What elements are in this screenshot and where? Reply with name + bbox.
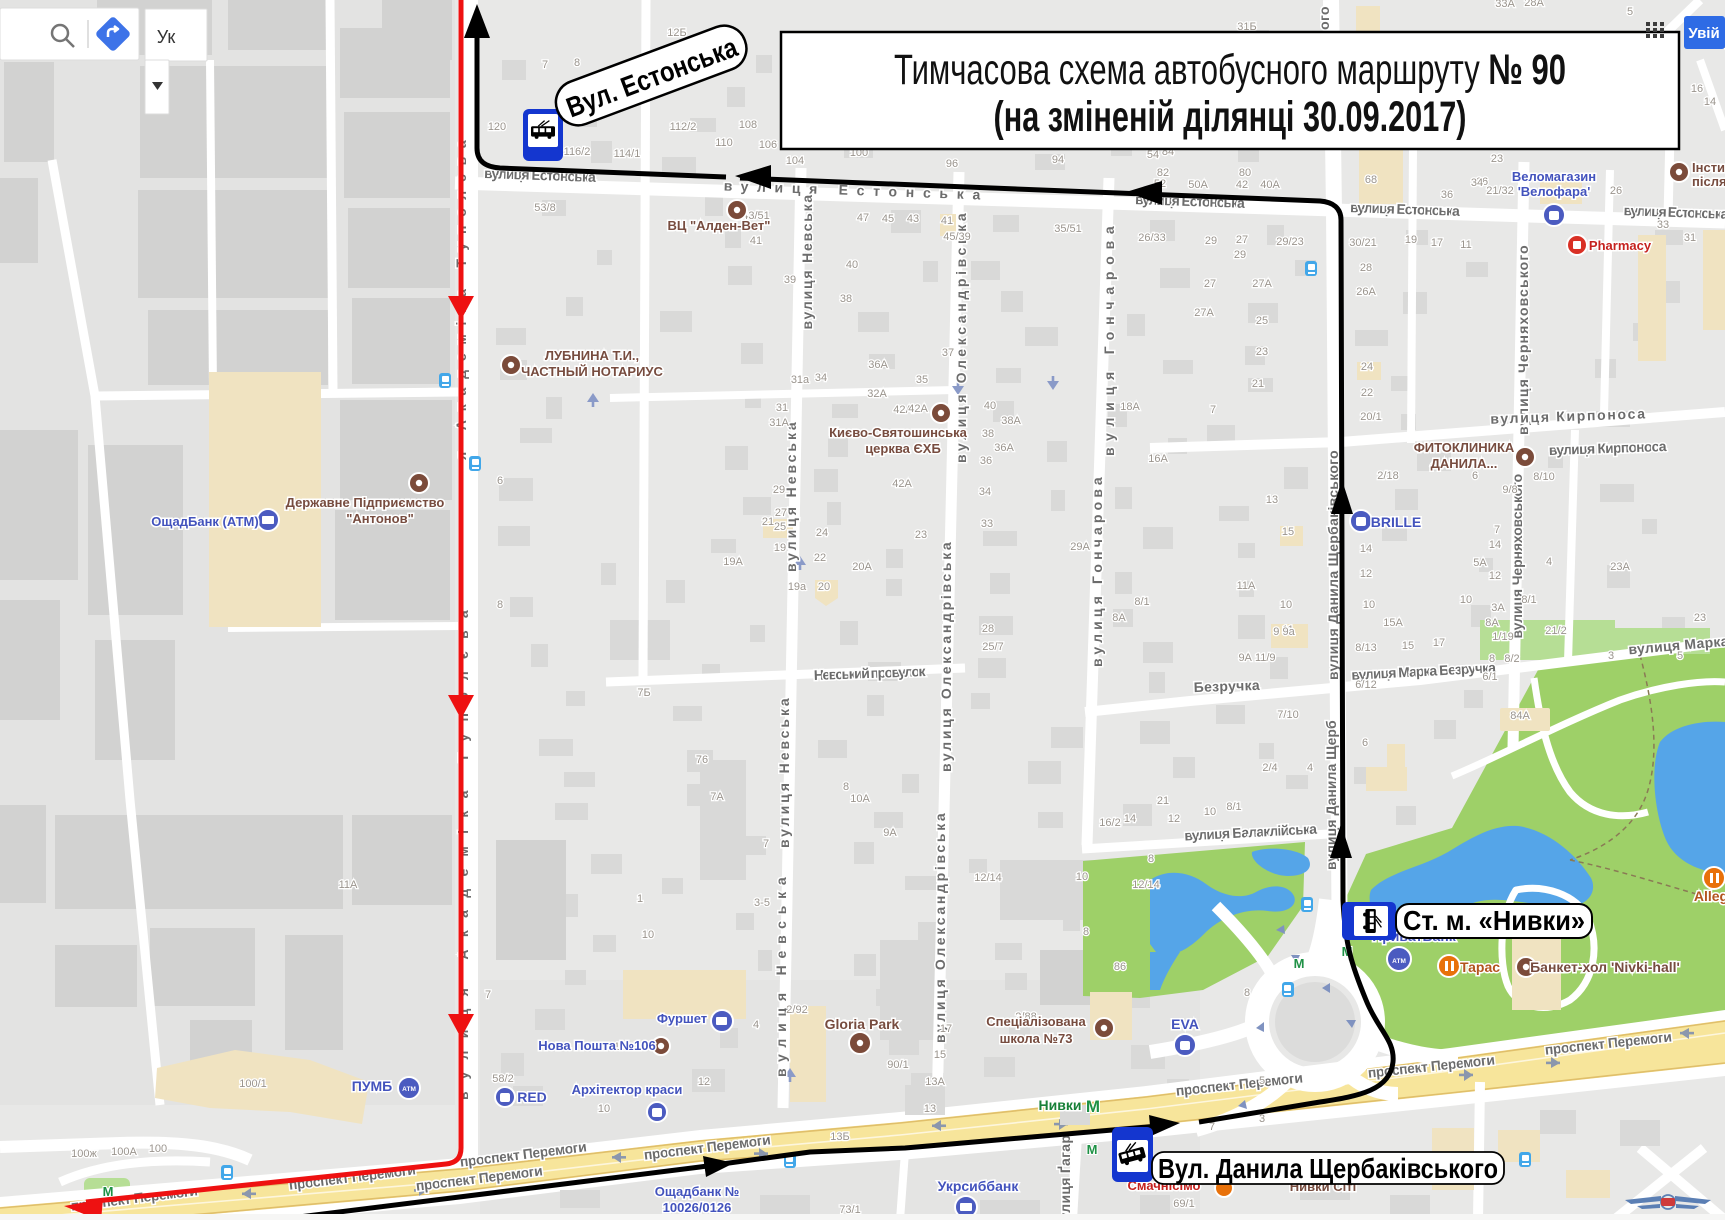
svg-text:М: М (1087, 1142, 1098, 1157)
svg-text:94: 94 (1052, 154, 1064, 166)
svg-text:38: 38 (840, 293, 852, 305)
svg-text:10: 10 (1363, 599, 1375, 611)
svg-text:27А: 27А (1252, 278, 1272, 290)
svg-text:Нивки: Нивки (1039, 1097, 1082, 1113)
svg-text:19: 19 (1405, 234, 1417, 246)
svg-text:3: 3 (1259, 1113, 1265, 1125)
svg-text:ого: ого (1316, 6, 1332, 30)
svg-text:15А: 15А (1383, 617, 1403, 629)
svg-text:8А: 8А (1485, 617, 1499, 629)
svg-text:22: 22 (814, 552, 826, 564)
svg-text:35: 35 (916, 374, 928, 386)
svg-text:36А: 36А (868, 359, 888, 371)
svg-text:8: 8 (497, 599, 503, 611)
svg-text:12Б: 12Б (667, 27, 686, 39)
svg-text:12: 12 (1168, 813, 1180, 825)
svg-text:6: 6 (1472, 470, 1478, 482)
svg-text:19А: 19А (723, 556, 743, 568)
svg-text:вулиця Черняховського: вулиця Черняховського (1509, 474, 1525, 639)
svg-text:1/19: 1/19 (1492, 631, 1513, 643)
svg-text:24: 24 (1361, 361, 1373, 373)
svg-text:26/33: 26/33 (1138, 232, 1166, 244)
svg-text:50A: 50A (1188, 179, 1208, 191)
svg-text:2/92: 2/92 (786, 1004, 807, 1016)
svg-text:100А: 100А (111, 1146, 137, 1158)
svg-text:42: 42 (1236, 179, 1248, 191)
svg-text:34: 34 (979, 486, 991, 498)
svg-text:вулиця Олександрівська: вулиця Олександрівська (938, 542, 954, 772)
svg-text:114/1: 114/1 (614, 148, 641, 160)
svg-text:11: 11 (1460, 239, 1471, 251)
svg-text:25: 25 (774, 521, 786, 533)
svg-text:8/13: 8/13 (1355, 642, 1376, 654)
svg-text:26: 26 (1610, 185, 1622, 197)
svg-text:М: М (1086, 1097, 1100, 1116)
svg-text:13: 13 (1266, 494, 1278, 506)
svg-text:5: 5 (1677, 650, 1683, 662)
svg-text:Укрсиббанк: Укрсиббанк (938, 1178, 1020, 1194)
svg-text:42А: 42А (892, 478, 912, 490)
svg-text:3А: 3А (1491, 602, 1505, 614)
svg-text:15: 15 (1282, 526, 1294, 538)
svg-text:58/2: 58/2 (492, 1073, 513, 1085)
svg-text:33: 33 (981, 518, 993, 530)
svg-text:5А: 5А (1473, 557, 1487, 569)
svg-text:37: 37 (942, 347, 954, 359)
svg-text:14: 14 (1360, 543, 1372, 555)
svg-text:35/51: 35/51 (1054, 223, 1082, 235)
svg-text:33: 33 (1657, 219, 1669, 231)
svg-text:36: 36 (980, 455, 992, 467)
svg-text:2/4: 2/4 (1262, 762, 1277, 774)
svg-text:3-5: 3-5 (754, 897, 770, 909)
svg-text:ВЦ "Алден-Вет": ВЦ "Алден-Вет" (668, 218, 771, 233)
svg-text:Вул. Данила Щербаківського: Вул. Данила Щербаківського (1158, 1153, 1498, 1184)
svg-text:10: 10 (598, 1103, 610, 1115)
svg-text:Тимчасова схема автобусного ма: Тимчасова схема автобусного маршруту № 9… (894, 46, 1566, 94)
svg-text:6: 6 (1362, 737, 1368, 749)
svg-text:14: 14 (1489, 539, 1501, 551)
svg-text:41: 41 (750, 235, 762, 247)
svg-text:69/1: 69/1 (1173, 1198, 1194, 1210)
svg-text:31: 31 (1684, 232, 1696, 244)
svg-text:ДАНИЛА...: ДАНИЛА... (1431, 456, 1498, 471)
svg-text:12: 12 (698, 1076, 710, 1088)
svg-text:26А: 26А (1356, 286, 1376, 298)
svg-text:47: 47 (857, 212, 869, 224)
svg-text:24: 24 (816, 527, 828, 539)
svg-text:45/39: 45/39 (943, 231, 971, 243)
svg-text:29: 29 (1205, 235, 1217, 247)
svg-text:8: 8 (843, 781, 849, 793)
svg-text:28: 28 (982, 623, 994, 635)
svg-text:18А: 18А (1120, 401, 1140, 413)
svg-text:4: 4 (1307, 762, 1313, 774)
svg-text:RED: RED (517, 1089, 547, 1105)
svg-text:9А 11/9: 9А 11/9 (1238, 652, 1275, 664)
svg-text:104: 104 (786, 155, 804, 167)
svg-text:12/14: 12/14 (974, 872, 1002, 884)
svg-text:Ощадбанк №: Ощадбанк № (655, 1184, 739, 1199)
svg-text:23: 23 (915, 529, 927, 541)
svg-text:21/32: 21/32 (1486, 185, 1514, 197)
svg-text:Ст. м. «Нивки»: Ст. м. «Нивки» (1403, 905, 1585, 936)
svg-text:120: 120 (488, 121, 506, 133)
svg-text:40: 40 (984, 400, 996, 412)
svg-text:116/2: 116/2 (564, 146, 591, 158)
svg-text:12: 12 (1360, 568, 1372, 580)
svg-text:16А: 16А (1148, 453, 1168, 465)
svg-text:післяд: післяд (1692, 174, 1725, 189)
svg-text:(на зміненій ділянці 30.09.201: (на зміненій ділянці 30.09.2017) (994, 93, 1467, 141)
svg-text:10: 10 (1460, 594, 1472, 606)
svg-text:29: 29 (773, 484, 785, 496)
svg-text:12: 12 (1489, 570, 1501, 582)
svg-text:10А: 10А (850, 793, 870, 805)
svg-text:АТМ: АТМ (1392, 958, 1406, 965)
svg-text:23: 23 (1256, 346, 1268, 358)
svg-text:22: 22 (1361, 387, 1373, 399)
svg-text:15: 15 (934, 1049, 946, 1061)
svg-text:41: 41 (941, 215, 953, 227)
svg-text:17: 17 (1431, 237, 1443, 249)
svg-text:106: 106 (759, 139, 777, 151)
svg-text:"Антонов": "Антонов" (346, 511, 414, 526)
svg-text:21: 21 (762, 516, 774, 528)
svg-text:Нова Пошта №106: Нова Пошта №106 (538, 1038, 656, 1053)
svg-text:10: 10 (1280, 599, 1292, 611)
svg-text:8/1: 8/1 (1521, 594, 1536, 606)
svg-text:Увій: Увій (1688, 25, 1719, 42)
svg-text:7: 7 (1494, 524, 1500, 536)
svg-text:45: 45 (882, 213, 894, 225)
svg-text:6/12: 6/12 (1355, 679, 1376, 691)
svg-text:1: 1 (637, 893, 643, 905)
svg-text:8/10: 8/10 (1533, 471, 1554, 483)
svg-text:школа №73: школа №73 (1000, 1031, 1073, 1046)
svg-text:13: 13 (924, 1103, 936, 1115)
svg-text:86: 86 (1114, 961, 1126, 973)
svg-text:Gloria Park: Gloria Park (825, 1016, 900, 1032)
svg-text:Alleg: Alleg (1694, 888, 1725, 904)
svg-text:40A: 40A (1260, 179, 1280, 191)
svg-text:Банкет-хол 'Nivki-hall': Банкет-хол 'Nivki-hall' (1530, 959, 1680, 975)
svg-text:8А: 8А (1112, 612, 1126, 624)
svg-text:вулиця Олександрівська: вулиця Олександрівська (932, 813, 948, 1043)
svg-text:7: 7 (763, 838, 769, 850)
svg-text:7: 7 (485, 989, 491, 1001)
svg-text:76: 76 (696, 754, 708, 766)
svg-text:29/23: 29/23 (1276, 236, 1304, 248)
svg-text:7: 7 (1210, 404, 1216, 416)
svg-text:54: 54 (1147, 149, 1159, 161)
svg-text:100/1: 100/1 (239, 1078, 267, 1090)
svg-text:4: 4 (753, 1019, 759, 1031)
svg-text:19а: 19а (788, 581, 807, 593)
svg-text:32А: 32А (867, 388, 887, 400)
svg-text:53/8: 53/8 (534, 202, 555, 214)
svg-text:20/1: 20/1 (1360, 411, 1381, 423)
svg-text:8: 8 (1083, 926, 1089, 938)
svg-text:20А: 20А (852, 561, 872, 573)
svg-text:Спеціалізована: Спеціалізована (986, 1014, 1086, 1029)
svg-text:17: 17 (940, 1023, 952, 1035)
svg-text:42А: 42А (908, 403, 928, 415)
svg-text:31А: 31А (769, 417, 789, 429)
svg-text:34: 34 (815, 372, 827, 384)
svg-text:84А: 84А (1510, 710, 1530, 722)
svg-text:16/2: 16/2 (1099, 817, 1120, 829)
svg-text:28: 28 (1360, 262, 1372, 274)
svg-text:10026/0126: 10026/0126 (663, 1200, 732, 1215)
svg-text:Ук: Ук (157, 27, 176, 47)
svg-text:100ж: 100ж (71, 1148, 97, 1160)
svg-text:38А: 38А (1001, 415, 1021, 427)
svg-text:Інстит: Інстит (1692, 160, 1725, 175)
svg-text:112/2: 112/2 (670, 121, 697, 133)
svg-text:АТМ: АТМ (402, 1086, 416, 1093)
svg-text:80: 80 (1239, 167, 1251, 179)
svg-text:2/18: 2/18 (1377, 470, 1398, 482)
svg-text:7Б: 7Б (637, 687, 650, 699)
svg-text:39: 39 (784, 274, 796, 286)
svg-text:3: 3 (1608, 650, 1614, 662)
svg-text:29А: 29А (1070, 541, 1090, 553)
svg-text:Веломагазин: Веломагазин (1512, 169, 1596, 184)
svg-text:вулиця Данила Щербаківського: вулиця Данила Щербаківського (1325, 450, 1341, 680)
svg-text:6/1: 6/1 (1482, 671, 1497, 683)
svg-text:5: 5 (1627, 6, 1633, 18)
svg-text:ПУМБ: ПУМБ (352, 1078, 393, 1094)
svg-text:8/1: 8/1 (1134, 596, 1149, 608)
svg-text:33А: 33А (1495, 0, 1515, 10)
svg-text:Фуршет: Фуршет (657, 1011, 707, 1026)
svg-text:21: 21 (1157, 795, 1169, 807)
svg-text:12/14: 12/14 (1132, 879, 1160, 891)
svg-text:25: 25 (1256, 315, 1268, 327)
svg-text:10: 10 (1076, 871, 1088, 883)
svg-text:5: 5 (1259, 1075, 1265, 1087)
svg-text:8: 8 (574, 57, 580, 69)
svg-text:34: 34 (1471, 177, 1483, 189)
svg-text:13Б: 13Б (830, 1131, 849, 1143)
svg-text:40: 40 (846, 259, 858, 271)
svg-text:7: 7 (1209, 1121, 1215, 1133)
svg-text:М: М (103, 1184, 114, 1199)
svg-text:38: 38 (982, 428, 994, 440)
svg-text:BRILLE: BRILLE (1371, 514, 1422, 530)
svg-text:ФИТОКЛИНИКА: ФИТОКЛИНИКА (1414, 440, 1515, 455)
svg-text:27: 27 (1236, 234, 1248, 246)
svg-text:Державне Підприємство: Державне Підприємство (286, 495, 445, 510)
svg-text:Безручка: Безручка (1193, 677, 1260, 695)
svg-text:23: 23 (1694, 612, 1706, 624)
svg-text:вулиця Гончарова: вулиця Гончарова (1101, 226, 1117, 456)
svg-text:36А: 36А (994, 442, 1014, 454)
svg-text:108: 108 (739, 119, 757, 131)
svg-text:90/1: 90/1 (887, 1059, 908, 1071)
svg-text:13А: 13А (925, 1076, 945, 1088)
svg-text:8/2: 8/2 (1504, 653, 1519, 665)
svg-text:14: 14 (1704, 96, 1716, 108)
svg-text:23: 23 (1491, 153, 1503, 165)
svg-text:14: 14 (1124, 813, 1136, 825)
svg-text:'Велофара': 'Велофара' (1518, 184, 1591, 199)
svg-text:4: 4 (1546, 556, 1552, 568)
svg-text:27: 27 (775, 507, 787, 519)
svg-text:EVA: EVA (1171, 1016, 1199, 1032)
svg-text:вулиця Ґагар: вулиця Ґагар (1057, 1135, 1073, 1220)
svg-text:церква ЄХБ: церква ЄХБ (865, 441, 941, 456)
svg-text:16: 16 (1691, 83, 1703, 95)
svg-text:Pharmacy: Pharmacy (1589, 238, 1652, 253)
svg-text:11А: 11А (1237, 580, 1256, 592)
svg-text:Києво-Святошинська: Києво-Святошинська (829, 425, 968, 440)
svg-text:100: 100 (149, 1143, 167, 1155)
svg-text:15: 15 (1402, 640, 1414, 652)
svg-text:ЧАСТНЫЙ НОТАРИУС: ЧАСТНЫЙ НОТАРИУС (521, 364, 663, 379)
svg-text:9 9а: 9 9а (1273, 626, 1295, 638)
svg-text:10: 10 (642, 929, 654, 941)
svg-text:7А: 7А (710, 791, 724, 803)
svg-text:19: 19 (774, 542, 786, 554)
svg-text:вулиця Невська: вулиця Невська (776, 698, 792, 848)
svg-text:23А: 23А (1610, 561, 1630, 573)
svg-text:11А: 11А (339, 879, 358, 891)
svg-text:9А: 9А (883, 827, 897, 839)
svg-text:6: 6 (497, 475, 503, 487)
svg-text:28А: 28А (1524, 0, 1544, 9)
svg-text:8: 8 (1148, 853, 1154, 865)
svg-text:20: 20 (818, 581, 830, 593)
svg-text:вулиця Невська: вулиця Невська (799, 195, 815, 330)
svg-text:Архітектор краси: Архітектор краси (572, 1082, 683, 1097)
svg-text:8: 8 (1244, 987, 1250, 999)
svg-text:10: 10 (1204, 806, 1216, 818)
svg-text:27А: 27А (1194, 307, 1214, 319)
svg-text:вулиця Гончарова: вулиця Гончарова (1089, 477, 1105, 667)
svg-text:25/7: 25/7 (982, 641, 1003, 653)
svg-text:9/8: 9/8 (1502, 484, 1517, 496)
svg-text:30/21: 30/21 (1349, 237, 1377, 249)
svg-text:8: 8 (1489, 653, 1495, 665)
svg-text:110: 110 (715, 137, 733, 149)
svg-text:М: М (1294, 956, 1305, 971)
svg-text:36: 36 (1441, 189, 1453, 201)
svg-text:21/2: 21/2 (1545, 625, 1566, 637)
svg-text:31: 31 (776, 402, 788, 414)
svg-text:96: 96 (946, 158, 958, 170)
svg-text:27: 27 (1204, 278, 1216, 290)
svg-text:Тарас: Тарас (1460, 959, 1500, 975)
svg-text:7/10: 7/10 (1277, 709, 1298, 721)
svg-text:вулиця Черняховського: вулиця Черняховського (1515, 245, 1531, 435)
svg-text:29: 29 (1234, 249, 1246, 261)
svg-text:ОщадБанк (АТМ): ОщадБанк (АТМ) (151, 514, 258, 529)
svg-text:7: 7 (542, 59, 548, 71)
svg-text:68: 68 (1365, 174, 1377, 186)
svg-text:17: 17 (1433, 637, 1445, 649)
svg-text:43: 43 (907, 213, 919, 225)
svg-text:8/1: 8/1 (1226, 801, 1241, 813)
svg-text:21: 21 (1252, 378, 1264, 390)
svg-text:ЛУБНИНА Т.И.,: ЛУБНИНА Т.И., (545, 348, 639, 363)
svg-text:31а: 31а (791, 374, 810, 386)
